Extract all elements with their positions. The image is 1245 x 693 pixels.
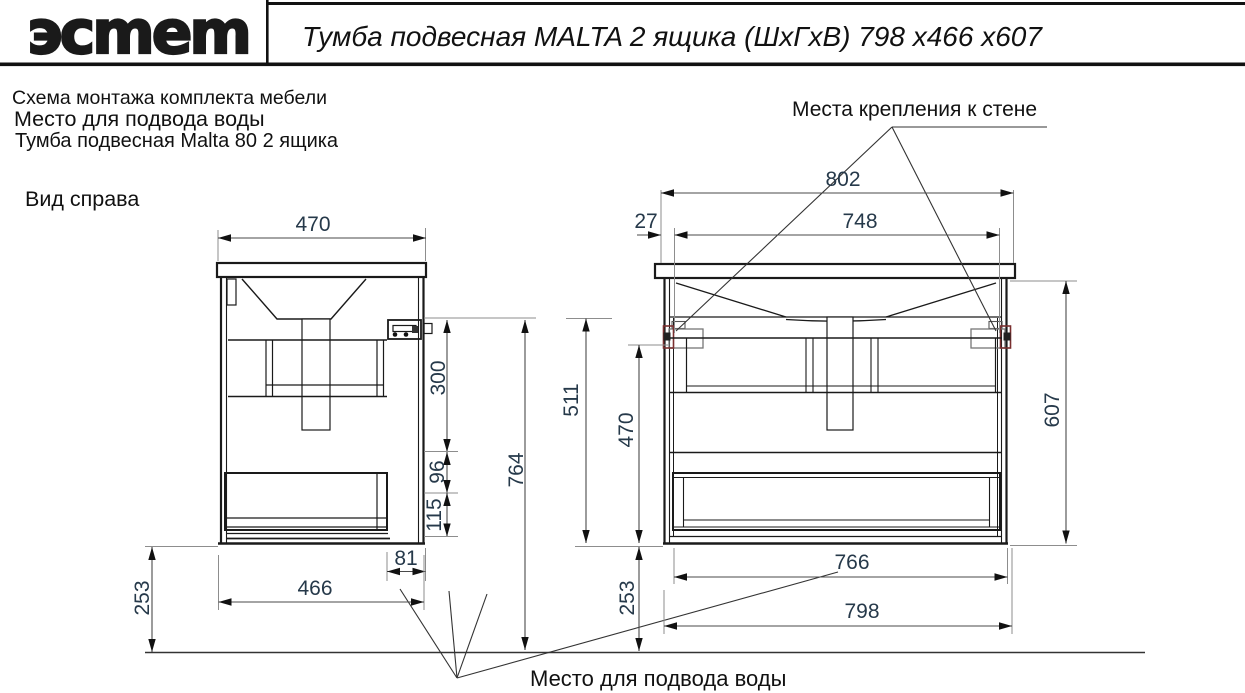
side-lower-drawer xyxy=(225,473,390,539)
label-water-supply: Место для подвода воды xyxy=(530,666,786,691)
dim-side-96: 96 xyxy=(426,460,449,483)
label-side-view: Вид справа xyxy=(25,187,139,211)
product-title: Тумба подвесная MALTA 2 ящика (ШхГхВ) 79… xyxy=(302,21,1043,52)
dim-side-253: 253 xyxy=(131,580,154,615)
dim-front-607: 607 xyxy=(1041,392,1064,427)
water-leader-3 xyxy=(457,594,487,678)
front-lower-drawer xyxy=(670,473,1002,537)
title-block: эсmеm Тумба подвесная MALTA 2 ящика (ШхГ… xyxy=(0,0,1245,68)
dim-side-width-top: 470 xyxy=(295,213,330,236)
dim-side-466: 466 xyxy=(297,577,332,600)
dim-side-764: 764 xyxy=(505,452,528,487)
brand-logo: эсmеm xyxy=(27,0,249,68)
dim-front-470: 470 xyxy=(615,412,638,447)
dim-front-748: 748 xyxy=(842,210,877,233)
note-schema: Схема монтажа комплекта мебели xyxy=(12,87,327,109)
header-divider xyxy=(266,0,269,65)
front-right-bracket xyxy=(971,322,1011,349)
note-product: Тумба подвесная Malta 80 2 ящика xyxy=(15,130,339,152)
side-drain-pipe xyxy=(302,319,330,430)
drawing-canvas: эсmеm Тумба подвесная MALTA 2 ящика (ШхГ… xyxy=(0,0,1245,693)
dim-front-27: 27 xyxy=(634,210,657,233)
front-left-bracket xyxy=(664,322,704,349)
side-basin xyxy=(242,279,366,319)
dim-front-798: 798 xyxy=(844,600,879,623)
dim-side-115: 115 xyxy=(423,498,446,531)
water-leader-2 xyxy=(449,591,457,678)
side-view-drawing xyxy=(217,263,432,544)
notes-block: Схема монтажа комплекта мебели Место для… xyxy=(12,87,339,211)
label-wall-mount: Места крепления к стене xyxy=(792,98,1037,121)
dim-front-511: 511 xyxy=(560,383,583,416)
dim-front-802: 802 xyxy=(825,168,860,191)
wall-mount-leader-right xyxy=(892,127,996,331)
dim-front-253: 253 xyxy=(616,580,639,615)
front-drain-pipe xyxy=(827,317,853,430)
dim-front-766: 766 xyxy=(834,551,869,574)
side-view-dimensions: 470 300 96 115 764 81 466 253 xyxy=(131,213,536,652)
dim-side-81: 81 xyxy=(394,547,417,570)
note-water: Место для подвода воды xyxy=(14,107,265,131)
dim-side-300: 300 xyxy=(427,360,450,395)
front-basin xyxy=(670,283,1002,321)
header-top-rule xyxy=(266,2,1245,5)
installation-drawing-page: эсmеm Тумба подвесная MALTA 2 ящика (ШхГ… xyxy=(0,0,1245,693)
water-leader-4 xyxy=(457,572,838,678)
front-view-dimensions: 802 27 748 511 470 253 607 766 79 xyxy=(560,168,1077,651)
side-countertop xyxy=(217,263,426,277)
side-wall-bracket xyxy=(388,320,432,339)
front-view-drawing xyxy=(655,264,1015,544)
front-countertop xyxy=(655,264,1015,278)
